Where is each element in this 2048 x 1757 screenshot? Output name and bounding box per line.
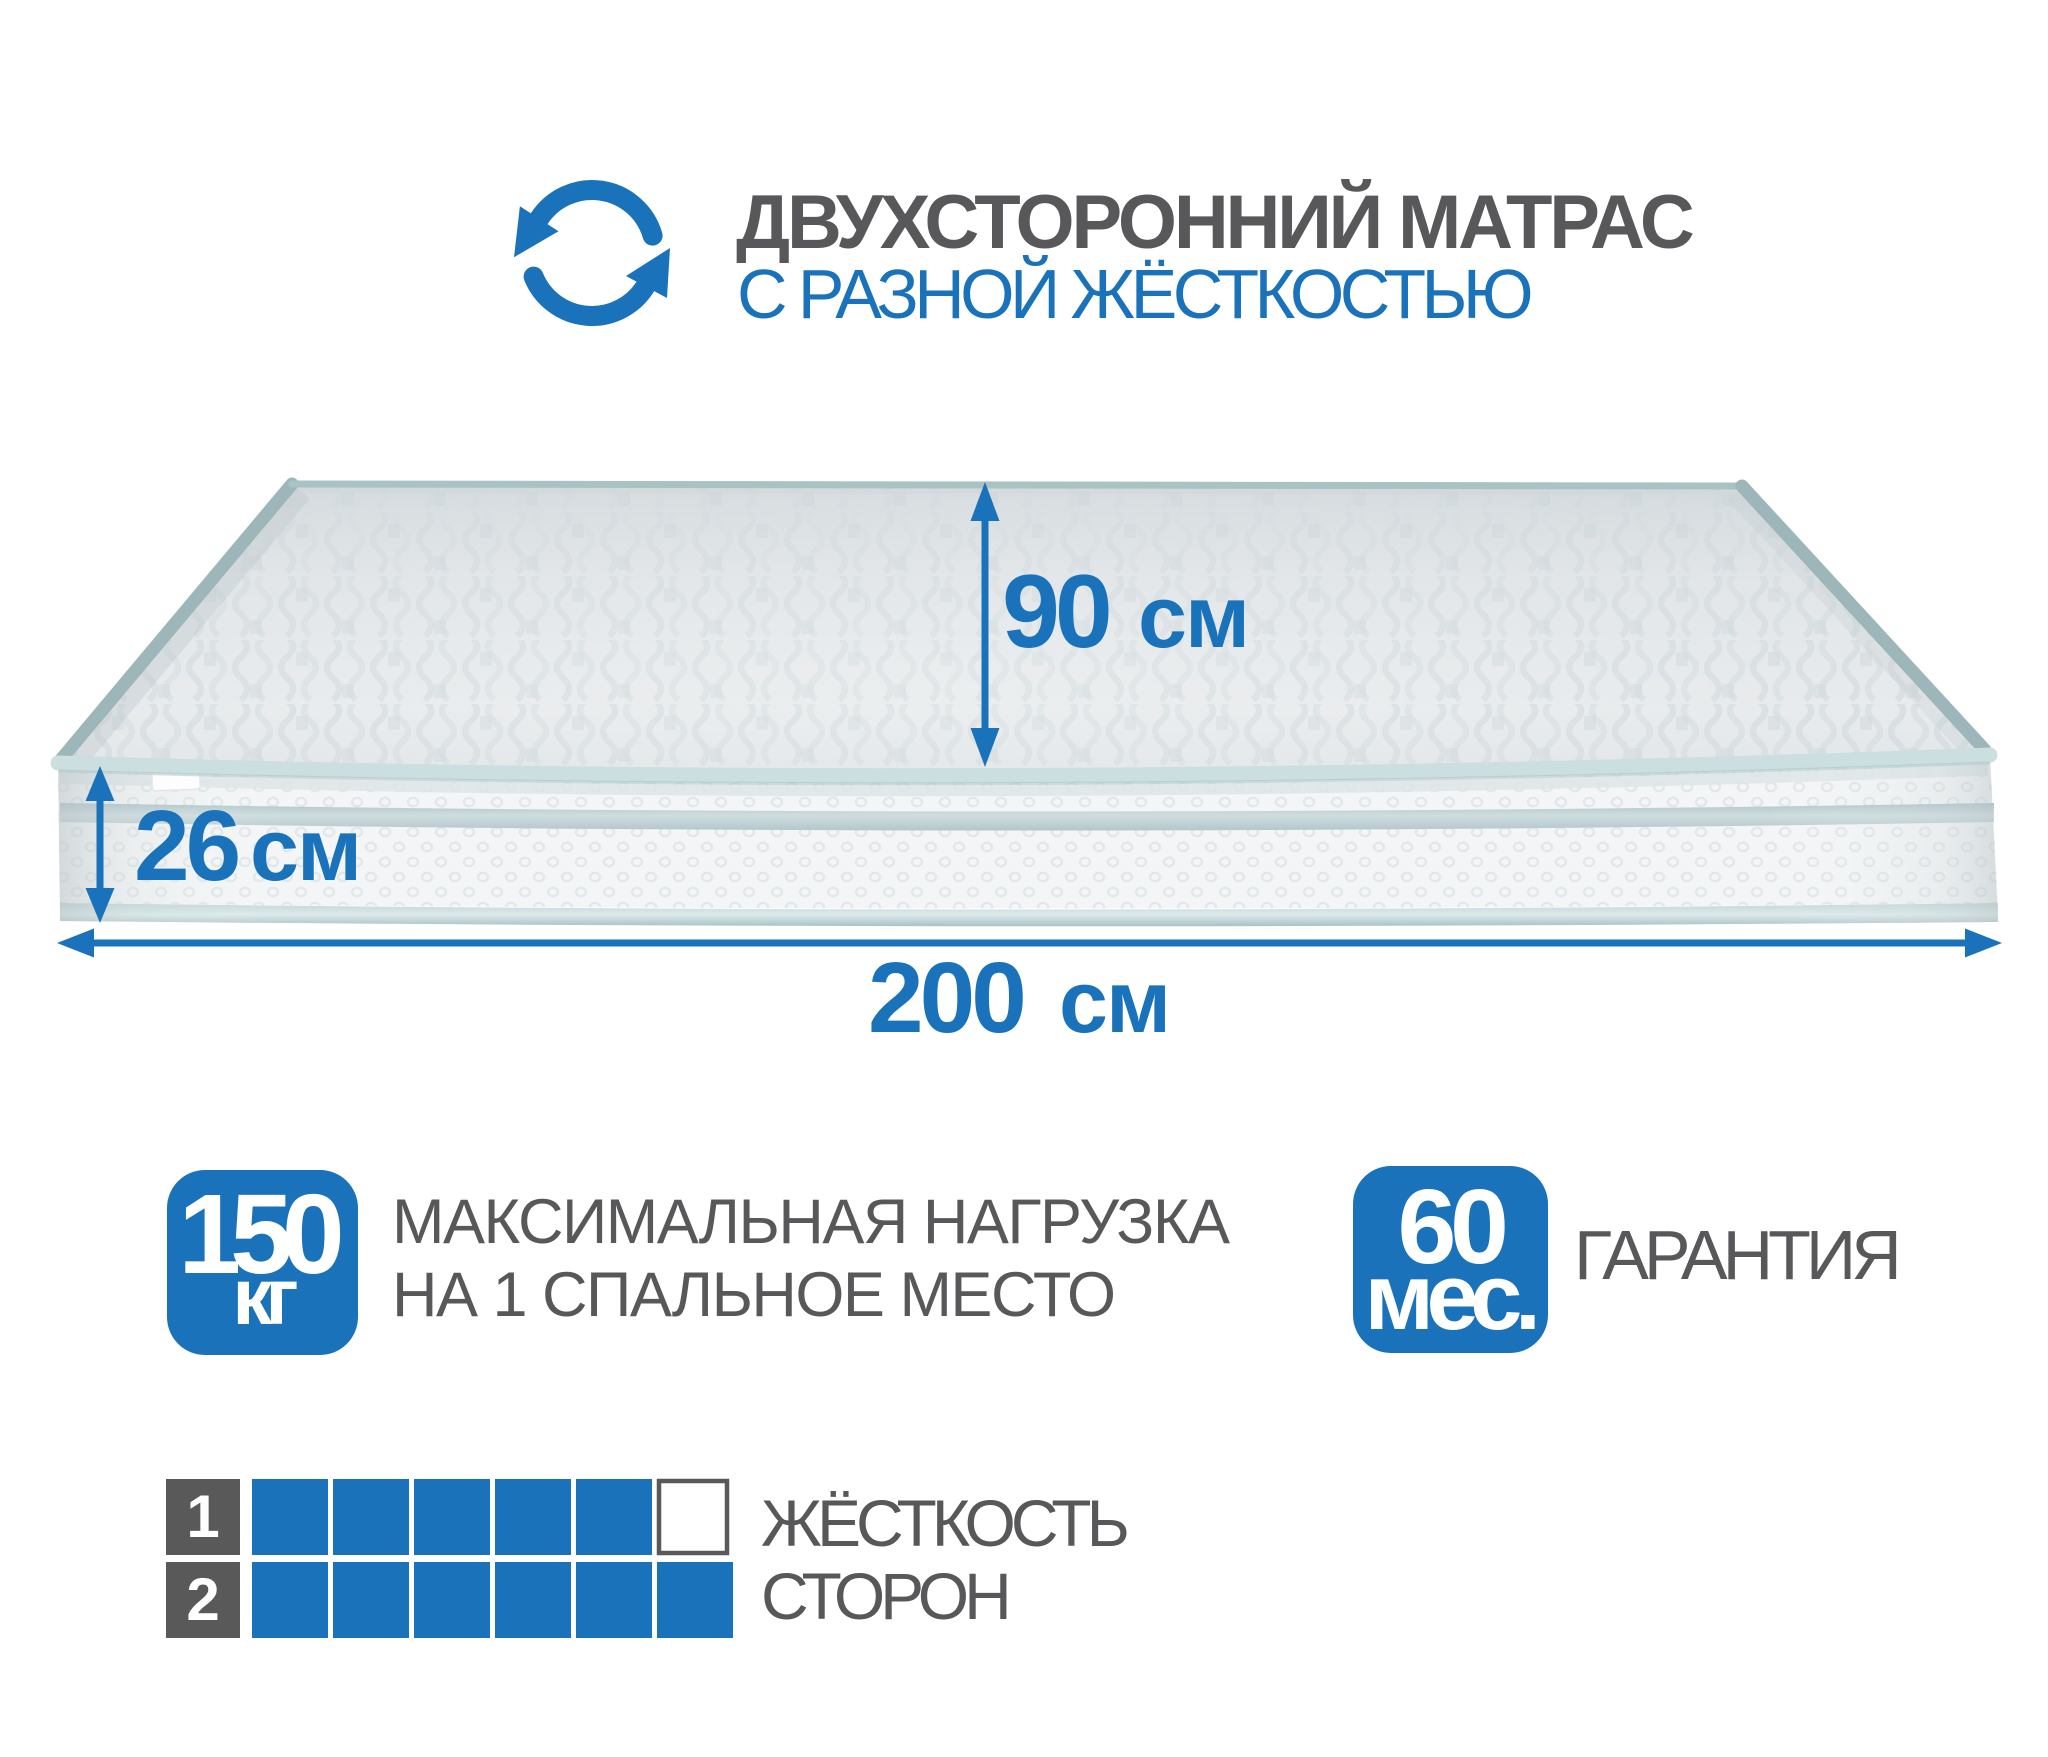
svg-text:МАКСИМАЛЬНАЯ НАГРУЗКА: МАКСИМАЛЬНАЯ НАГРУЗКА bbox=[392, 1187, 1230, 1257]
svg-text:см: см bbox=[250, 800, 360, 899]
svg-text:ДВУХСТОРОННИЙ МАТРАС: ДВУХСТОРОННИЙ МАТРАС bbox=[736, 179, 1693, 265]
svg-text:200: 200 bbox=[868, 942, 1023, 1054]
svg-text:НА 1 СПАЛЬНОЕ МЕСТО: НА 1 СПАЛЬНОЕ МЕСТО bbox=[392, 1260, 1115, 1330]
svg-text:26: 26 bbox=[134, 790, 238, 902]
svg-text:ГАРАНТИЯ: ГАРАНТИЯ bbox=[1574, 1216, 1897, 1294]
svg-text:мес.: мес. bbox=[1365, 1244, 1535, 1349]
svg-text:1: 1 bbox=[186, 1483, 219, 1550]
svg-text:90: 90 bbox=[1002, 554, 1109, 670]
svg-text:С РАЗНОЙ ЖЁСТКОСТЬЮ: С РАЗНОЙ ЖЁСТКОСТЬЮ bbox=[737, 254, 1531, 333]
svg-text:СТОРОН: СТОРОН bbox=[761, 1559, 1007, 1633]
svg-text:см: см bbox=[1138, 567, 1248, 666]
svg-text:ЖЁСТКОСТЬ: ЖЁСТКОСТЬ bbox=[761, 1486, 1127, 1560]
svg-text:см: см bbox=[1059, 952, 1169, 1051]
svg-text:кг: кг bbox=[232, 1252, 297, 1341]
svg-text:2: 2 bbox=[186, 1566, 219, 1633]
